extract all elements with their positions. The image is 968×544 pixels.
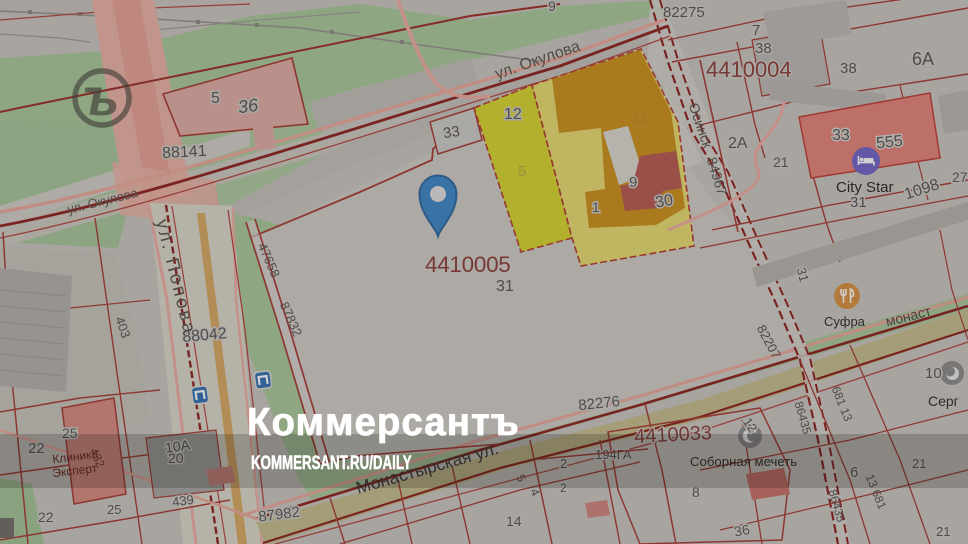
svg-text:5: 5: [211, 90, 220, 107]
svg-text:6A: 6A: [912, 49, 934, 69]
svg-text:Серг: Серг: [928, 393, 959, 409]
svg-text:27: 27: [952, 169, 968, 185]
svg-text:33: 33: [832, 127, 850, 144]
svg-text:4410004: 4410004: [706, 57, 792, 82]
svg-text:21: 21: [936, 524, 950, 539]
svg-text:31: 31: [496, 278, 514, 295]
svg-text:38: 38: [755, 40, 772, 57]
svg-text:31: 31: [850, 194, 867, 211]
svg-text:439: 439: [171, 492, 195, 510]
svg-text:36: 36: [237, 95, 261, 118]
svg-text:5: 5: [518, 163, 526, 180]
svg-text:ъ: ъ: [83, 69, 120, 127]
svg-text:9: 9: [629, 174, 637, 191]
svg-text:7: 7: [752, 22, 760, 39]
svg-text:10: 10: [925, 365, 942, 382]
svg-text:1: 1: [592, 199, 600, 215]
svg-text:25: 25: [107, 502, 121, 517]
svg-text:14: 14: [506, 513, 522, 529]
svg-text:36: 36: [733, 521, 751, 539]
svg-text:22: 22: [38, 509, 54, 525]
svg-text:88141: 88141: [162, 143, 207, 162]
svg-text:12: 12: [504, 106, 522, 123]
svg-text:11: 11: [633, 109, 648, 125]
svg-text:Суфра: Суфра: [824, 314, 866, 329]
svg-text:30: 30: [654, 192, 675, 212]
svg-text:21: 21: [773, 154, 789, 170]
svg-text:4410005: 4410005: [425, 252, 511, 277]
svg-text:555: 555: [875, 133, 903, 153]
svg-text:9: 9: [548, 0, 556, 14]
svg-text:82275: 82275: [663, 4, 705, 21]
svg-text:33: 33: [442, 123, 461, 142]
svg-text:2A: 2A: [728, 135, 748, 152]
svg-text:38: 38: [840, 60, 857, 77]
